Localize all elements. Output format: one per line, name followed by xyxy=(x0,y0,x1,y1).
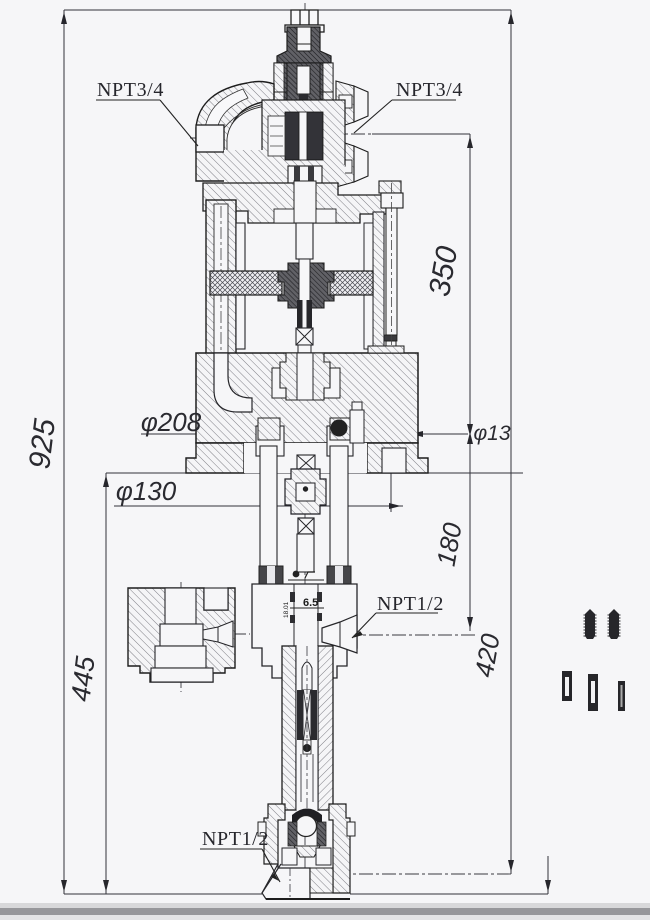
svg-text:φ130: φ130 xyxy=(116,476,177,506)
svg-text:925: 925 xyxy=(23,417,62,471)
svg-text:φ208: φ208 xyxy=(141,407,202,437)
svg-text:NPT3/4: NPT3/4 xyxy=(396,79,463,101)
svg-text:18.01: 18.01 xyxy=(283,601,290,618)
svg-text:NPT1/2: NPT1/2 xyxy=(202,828,269,850)
svg-text:NPT3/4: NPT3/4 xyxy=(97,79,164,101)
svg-text:NPT1/2: NPT1/2 xyxy=(377,593,444,615)
svg-text:445: 445 xyxy=(65,654,100,703)
svg-text:6.5: 6.5 xyxy=(303,597,318,609)
svg-text:φ13: φ13 xyxy=(473,422,510,445)
